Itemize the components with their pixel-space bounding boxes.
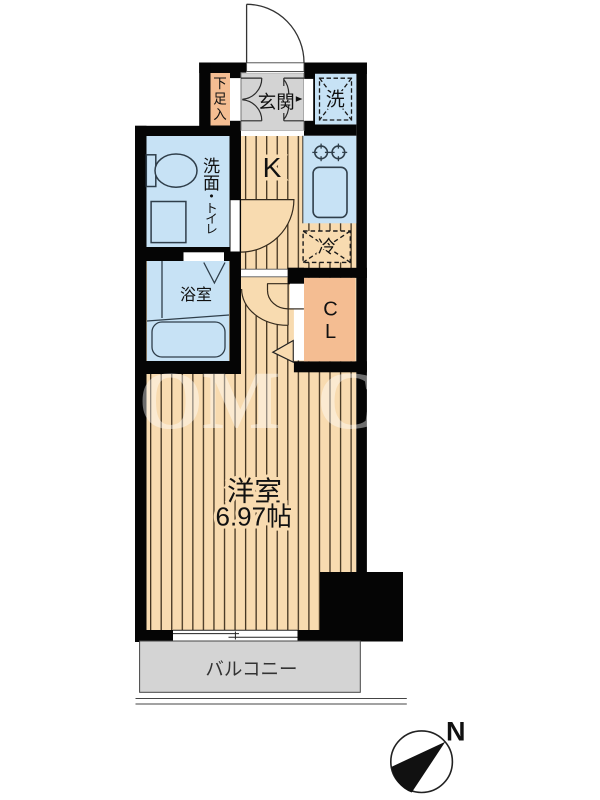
svg-text:入: 入 (213, 107, 227, 122)
svg-text:洗: 洗 (326, 89, 345, 111)
svg-text:下: 下 (213, 76, 227, 91)
svg-text:6.97帖: 6.97帖 (215, 502, 292, 532)
svg-text:L: L (325, 321, 336, 343)
svg-text:CO: CO (317, 354, 442, 446)
svg-text:レ: レ (205, 223, 218, 237)
svg-text:N: N (446, 717, 466, 747)
svg-text:C: C (323, 299, 337, 321)
svg-text:足: 足 (213, 92, 227, 107)
svg-text:OM: OM (139, 354, 280, 446)
svg-text:冷: 冷 (318, 237, 336, 257)
svg-text:バルコニー: バルコニー (205, 659, 297, 680)
svg-text:K: K (263, 152, 282, 183)
svg-text:玄関: 玄関 (258, 92, 295, 113)
svg-text:浴室: 浴室 (180, 286, 212, 304)
